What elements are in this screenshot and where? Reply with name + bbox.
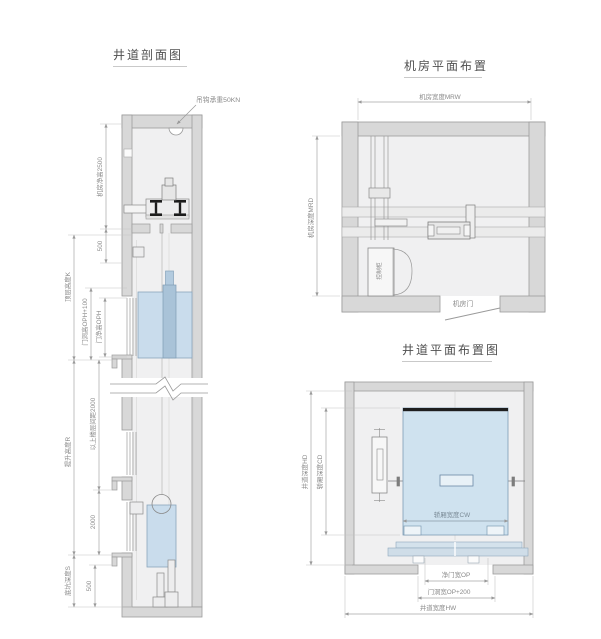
dim-machine-room-height: 机房净高2500 — [95, 157, 104, 197]
shaft-section-drawing: 吊钩承重50KN — [55, 90, 250, 639]
machine-room-title-underline — [404, 77, 482, 78]
section-view-title: 井道剖面图 — [113, 46, 183, 63]
machine-room-floor — [132, 224, 192, 233]
traction-machine-plan — [428, 222, 470, 239]
rope-hitch-plate — [369, 188, 390, 198]
dim-shaft-depth: 井道深度HD — [300, 454, 309, 489]
dim-pit-depth: 底坑深度S — [63, 566, 72, 596]
dim-500-bottom: 500 — [86, 580, 93, 591]
dim-machine-room-depth: 机房深度MRD — [306, 198, 315, 239]
car-handrail — [440, 475, 473, 486]
drawing-canvas: 井道剖面图 机房平面布置 井道平面布置图 吊钩承重50KN — [0, 0, 601, 639]
dim-2000: 2000 — [90, 514, 97, 529]
shaft-plan-title: 井道平面布置图 — [402, 341, 500, 358]
dim-shaft-width: 井道宽度HW — [420, 603, 457, 612]
shaft-plan-drawing: 轿厢宽度CW 井道深度HD 轿厢深度CD 净门宽OP 门洞宽OP+200 井道宽… — [295, 365, 560, 630]
break-line — [110, 377, 210, 400]
control-cabinet-label: 控制柜 — [375, 262, 383, 280]
governor — [375, 219, 407, 226]
section-title-underline — [113, 66, 187, 67]
dim-top-floor-height: 顶层高度K — [63, 271, 72, 302]
dim-500-top: 500 — [97, 240, 104, 251]
machine-room-plan-drawing: 控制柜 机房门 机房宽度MRW 机房深度MRD — [295, 85, 560, 335]
dim-upper-floor-distance: 以上楼层间距2000 — [88, 397, 97, 450]
pit-switch-box — [130, 502, 143, 514]
dim-car-width: 轿厢宽度CW — [434, 510, 471, 519]
machine-room-door-label: 机房门 — [453, 299, 474, 308]
machine-room-title: 机房平面布置 — [404, 57, 488, 74]
dim-machine-room-width: 机房宽度MRW — [419, 92, 461, 101]
shaft-plan-title-underline — [402, 361, 492, 362]
counterweight-plan — [372, 428, 387, 502]
counterweight-section — [147, 495, 176, 568]
dim-travel-height: 提升高度R — [63, 437, 72, 468]
dim-car-depth: 轿厢深度CD — [315, 454, 324, 489]
hook-label: 吊钩承重50KN — [196, 95, 240, 104]
dim-door-opening-width: 门洞宽OP+200 — [428, 587, 471, 596]
machine-room-door-leaf — [445, 308, 500, 320]
dim-door-opening-height: 门洞高OPH+100 — [80, 298, 89, 346]
dim-door-clear-width: 净门宽OP — [442, 570, 470, 579]
limit-switch-box — [133, 247, 144, 257]
wall-recess — [124, 149, 132, 157]
dim-door-clear-height: 门净高OPH — [94, 310, 103, 343]
